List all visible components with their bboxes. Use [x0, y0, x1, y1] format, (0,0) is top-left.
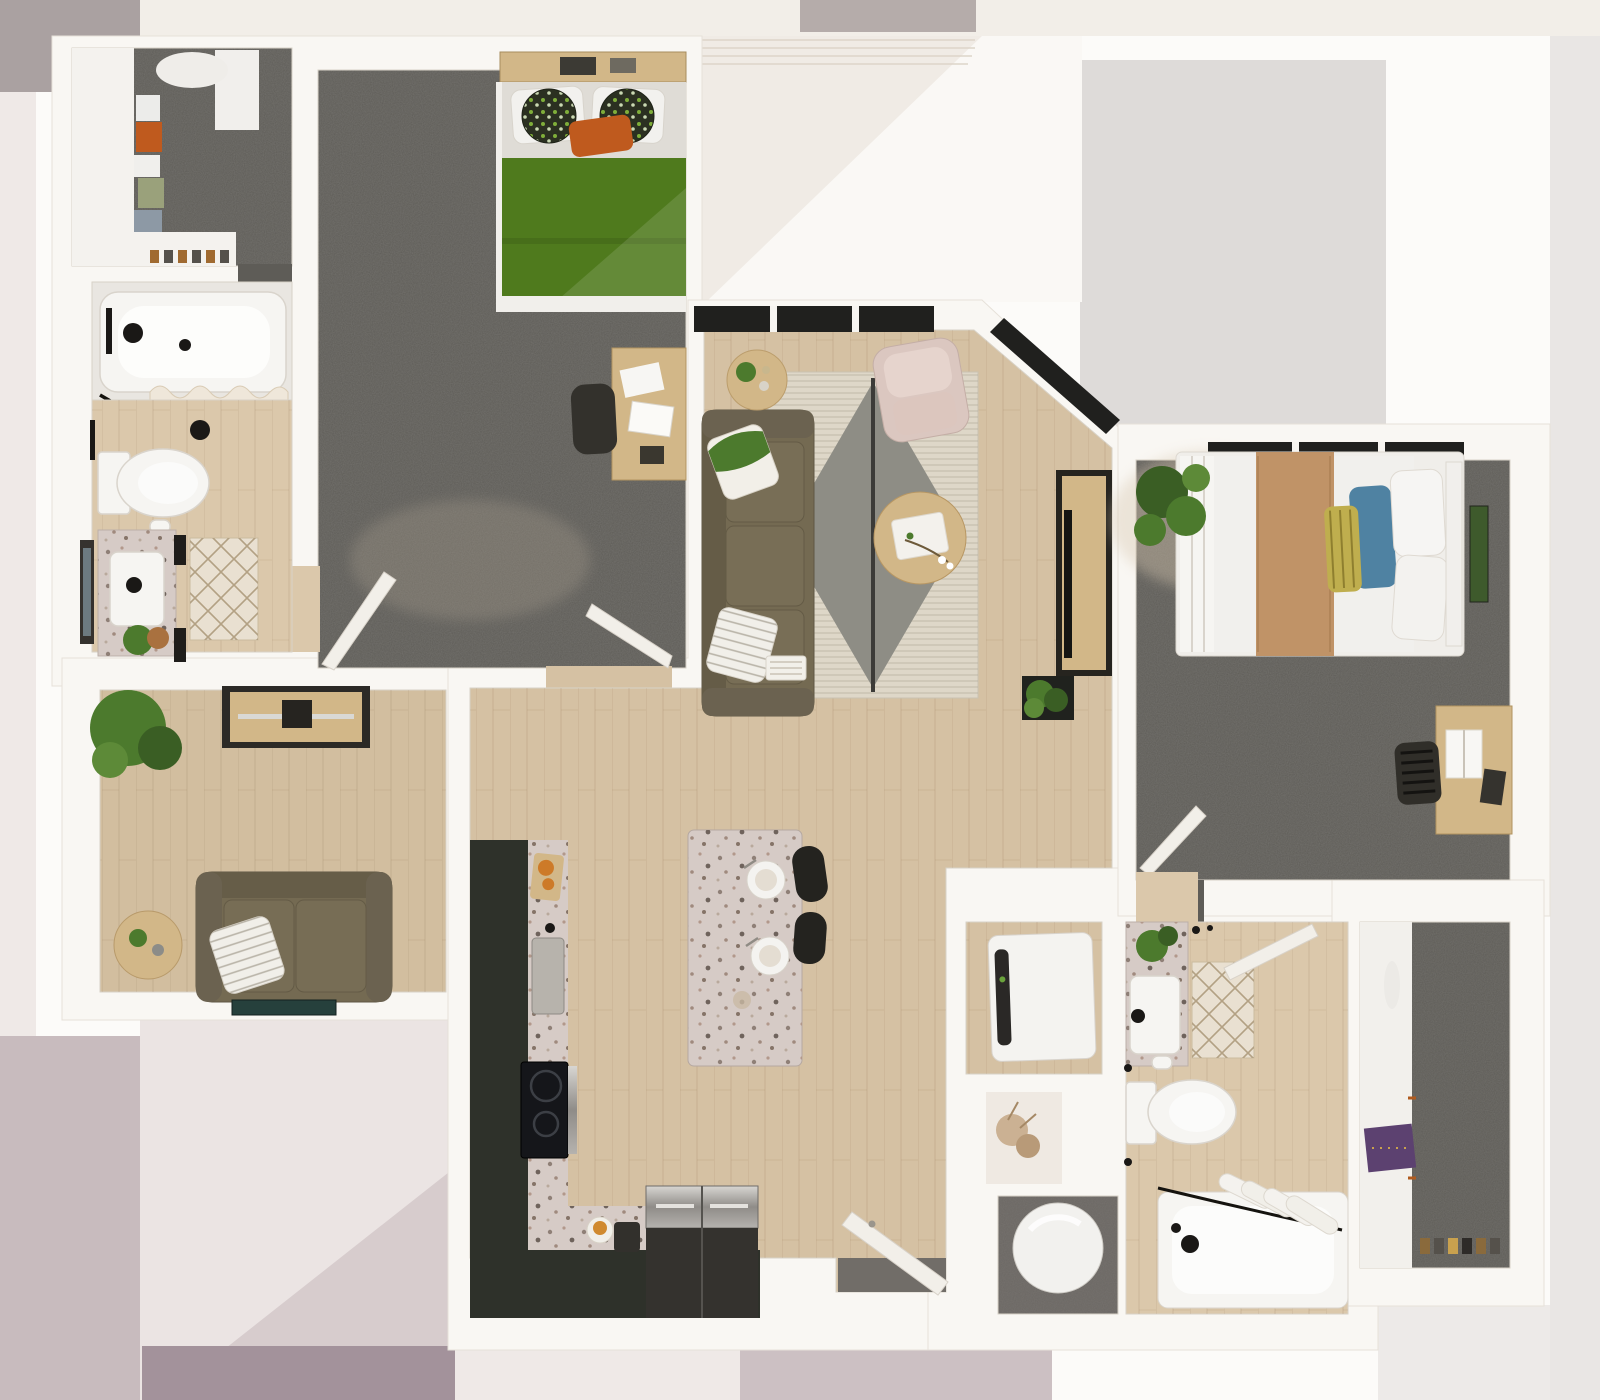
cutting-board [530, 853, 565, 902]
wall-art [1470, 506, 1488, 602]
room-bathroom-1 [80, 282, 292, 662]
loveseat [196, 872, 392, 1002]
office-chair [570, 383, 618, 455]
floor-plan-image [0, 0, 1600, 1400]
entry-niche [986, 1092, 1062, 1184]
room-laundry-closet [966, 922, 1102, 1074]
tub2-faucet [1181, 1235, 1199, 1253]
closet1-doorway [238, 264, 292, 284]
living-side-table [727, 350, 787, 410]
room-bedroom-2 [1110, 442, 1512, 922]
table-plant [736, 362, 756, 382]
coffee-table [874, 492, 966, 584]
plant-box [1022, 676, 1074, 720]
room-walk-in-closet-1 [72, 48, 292, 284]
hanging-clothes [134, 95, 164, 232]
kitchen-faucet [545, 923, 555, 933]
bed-runner [1256, 452, 1334, 656]
tv-screen [1064, 510, 1072, 658]
refrigerator [646, 1186, 758, 1318]
room-den [90, 686, 446, 1015]
loveseat-back [196, 872, 392, 898]
floor-plan-stage [0, 0, 1600, 1400]
cooktop [521, 1062, 568, 1158]
tv-console [1056, 470, 1112, 676]
basket [147, 627, 169, 649]
pillow-round-patterned-left [522, 89, 576, 143]
headboard [1446, 462, 1462, 646]
toilet2-paper [1152, 1056, 1172, 1069]
artwork-leaning [232, 1000, 336, 1015]
bathroom2-entry [1136, 872, 1198, 928]
cabinet-run-left [470, 840, 528, 1318]
towel-hook [190, 420, 210, 440]
oven-handle [568, 1066, 577, 1154]
pillow-white-bottom [1391, 554, 1449, 641]
bed-2 [1176, 452, 1464, 656]
bath1-doorway [292, 566, 320, 652]
room-bedroom-1 [292, 52, 686, 690]
room-walk-in-closet-2 [1360, 922, 1510, 1268]
sink-faucet [126, 577, 142, 593]
tub-faucet [123, 323, 143, 343]
hanging-garment-white [156, 52, 228, 88]
room-bathroom-2 [1124, 872, 1348, 1314]
pillow-white-top [1390, 469, 1446, 558]
den-side-table [114, 911, 182, 979]
shadow-top-right [1080, 60, 1386, 428]
bar-stool-2 [792, 911, 828, 965]
bed-green [496, 52, 686, 312]
tray [891, 512, 949, 560]
armchair [870, 335, 971, 444]
floor-vent [766, 656, 806, 680]
bathtub-2 [1158, 1171, 1348, 1308]
bedroom1-doorway [546, 666, 672, 690]
sink2-faucet [1131, 1009, 1145, 1023]
media-console-den [222, 686, 370, 748]
kitchen-sink [532, 938, 564, 1014]
coffee-maker [614, 1222, 640, 1252]
bed-frame-foot [502, 296, 686, 312]
room-water-heater-closet [998, 1196, 1118, 1314]
magazine [628, 401, 674, 437]
